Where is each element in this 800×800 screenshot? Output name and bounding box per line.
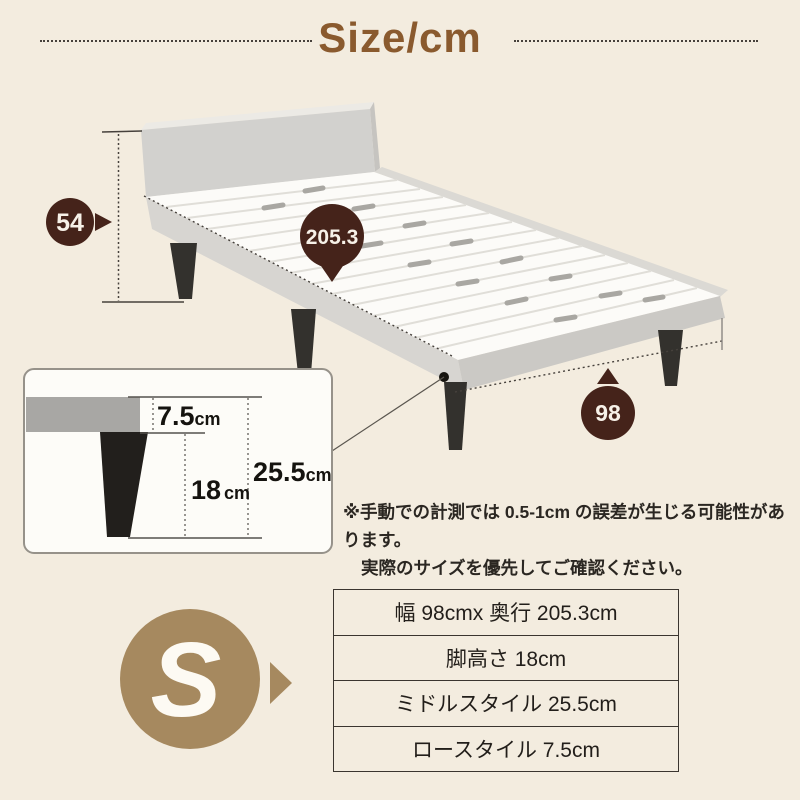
length-badge-value: 205.3 [306,226,359,249]
pointer-up-icon [597,368,619,384]
spec-row-dimensions: 幅 98cmx 奥行 205.3cm [334,590,678,636]
pointer-right-icon [95,213,112,231]
measurement-note: ※手動での計測では 0.5-1cm の誤差が生じる可能性があります。 実際のサイ… [343,498,795,582]
pointer-right-icon [270,662,292,704]
measurement-note-line1: ※手動での計測では 0.5-1cm の誤差が生じる可能性があります。 [343,498,795,554]
size-s-badge: S [120,609,292,749]
spec-row-middle-style: ミドルスタイル 25.5cm [334,681,678,727]
spec-table: 幅 98cmx 奥行 205.3cm 脚高さ 18cm ミドルスタイル 25.5… [333,589,679,772]
height-badge-value: 54 [56,209,84,237]
size-badge-label: S [151,621,222,739]
measurement-note-line2: 実際のサイズを優先してご確認ください。 [343,554,795,582]
spec-row-leg-height: 脚高さ 18cm [334,636,678,682]
spec-row-low-style: ロースタイル 7.5cm [334,727,678,772]
inset-leader-line [332,377,444,451]
height-cap-top [102,131,142,132]
bed-leg-foot-far [658,330,683,386]
inset-frame-bar [26,397,140,432]
product-size-infographic: Size/cm [0,0,800,800]
bed-leg-middle [291,309,316,374]
width-badge-value: 98 [595,400,621,426]
leg-detail-inset: 7.5cm 18cm 25.5cm [24,369,332,553]
bed-leg-head [170,243,197,299]
